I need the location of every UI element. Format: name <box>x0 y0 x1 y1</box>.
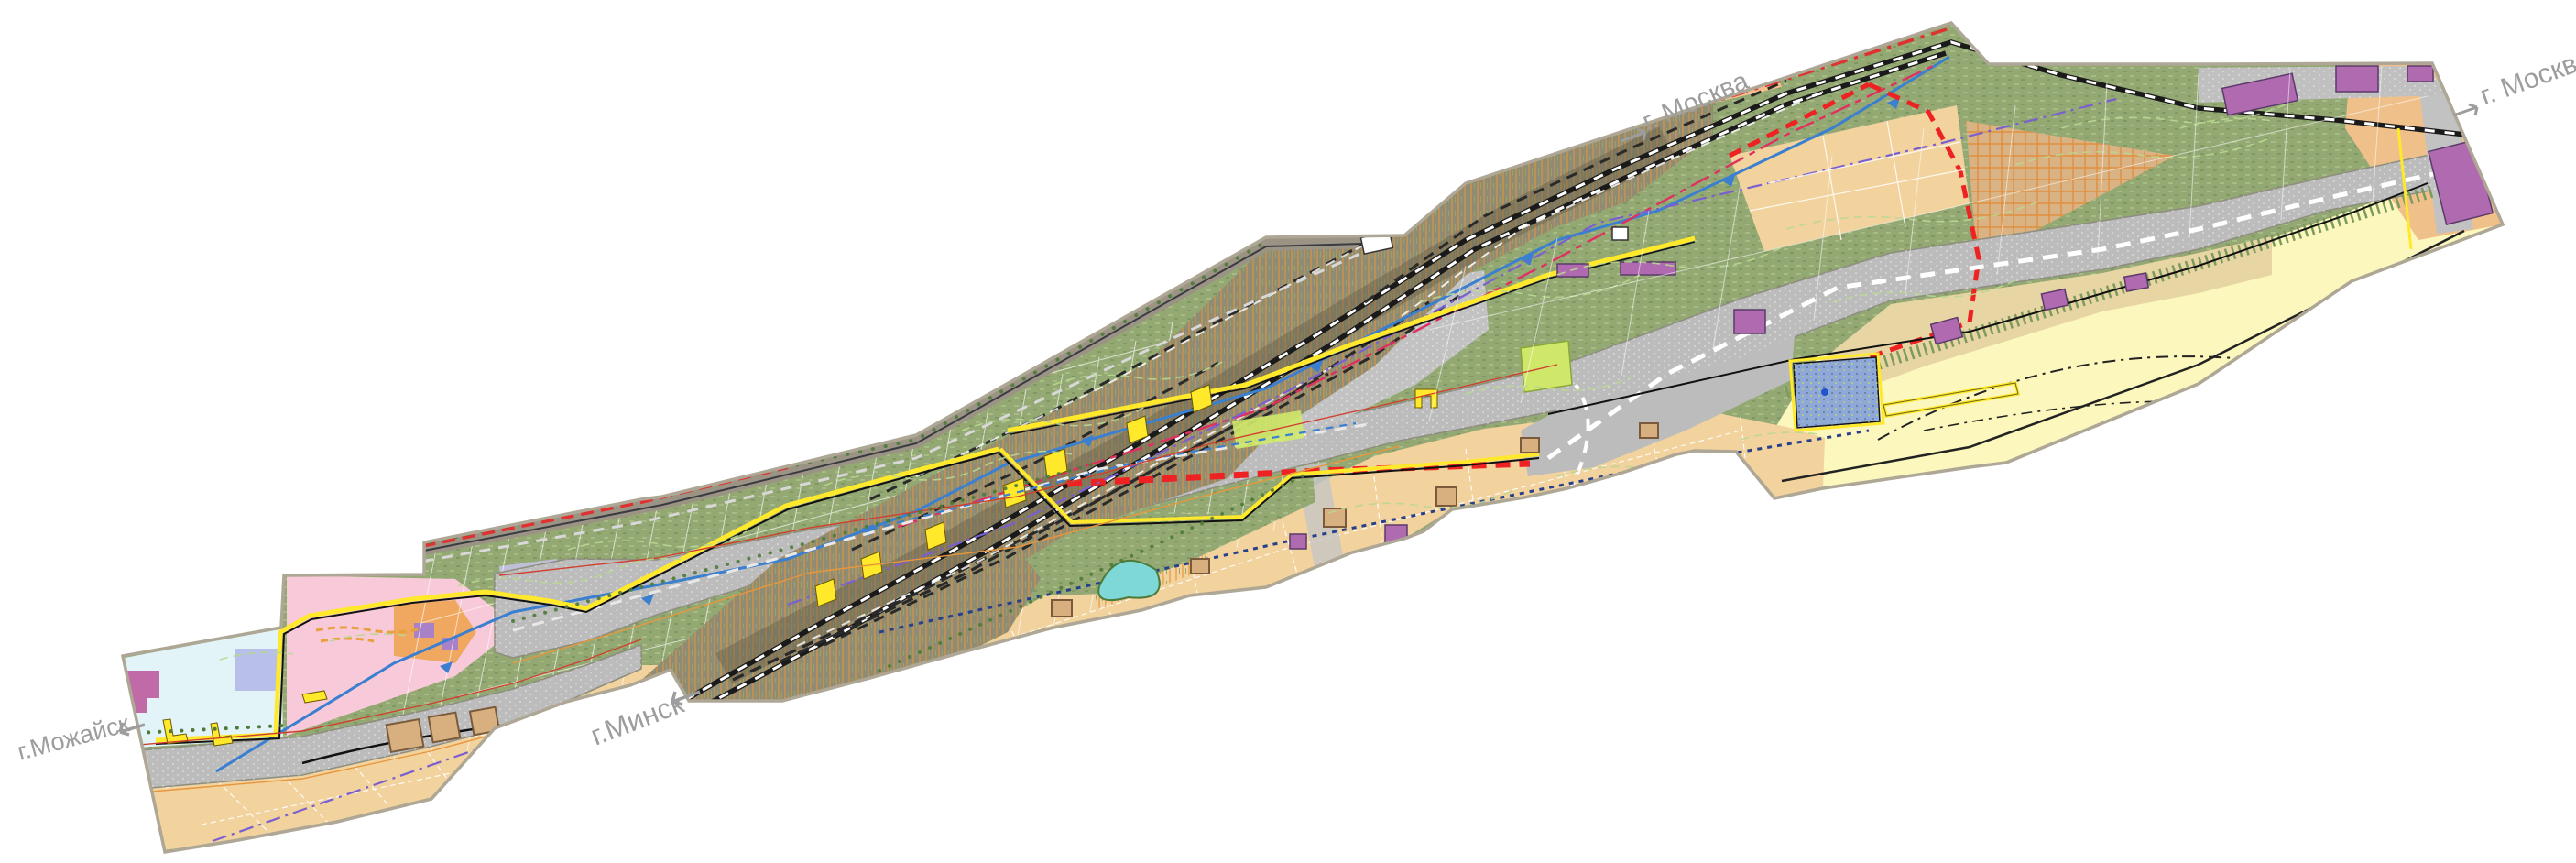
svg-text:г. Москва: г. Москва <box>2476 43 2576 111</box>
svg-text:г.Можайск: г.Можайск <box>15 709 133 765</box>
